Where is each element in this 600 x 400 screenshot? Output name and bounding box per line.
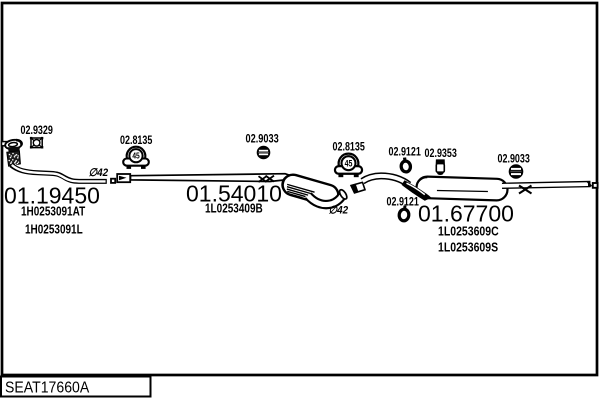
svg-text:02.8135: 02.8135 xyxy=(333,142,366,154)
svg-text:1H0253091L: 1H0253091L xyxy=(25,224,83,237)
svg-text:1L0253409B: 1L0253409B xyxy=(205,203,263,216)
svg-text:1L0253609S: 1L0253609S xyxy=(438,242,498,255)
svg-text:01.67700: 01.67700 xyxy=(418,201,514,227)
svg-text:02.9121: 02.9121 xyxy=(387,197,420,209)
svg-text:∅42: ∅42 xyxy=(89,168,109,180)
svg-text:02.9353: 02.9353 xyxy=(425,148,458,160)
svg-text:∅42: ∅42 xyxy=(329,205,349,217)
svg-text:02.9033: 02.9033 xyxy=(498,154,531,166)
svg-text:02.8135: 02.8135 xyxy=(120,135,153,147)
svg-text:SEAT17660A: SEAT17660A xyxy=(5,379,90,397)
svg-text:02.9121: 02.9121 xyxy=(389,147,422,159)
svg-text:1L0253609C: 1L0253609C xyxy=(438,226,499,239)
svg-text:02.9329: 02.9329 xyxy=(21,125,54,137)
svg-text:02.9033: 02.9033 xyxy=(246,134,279,146)
svg-text:1H0253091AT: 1H0253091AT xyxy=(21,206,85,219)
svg-text:45: 45 xyxy=(132,151,140,161)
svg-text:45: 45 xyxy=(345,158,353,168)
